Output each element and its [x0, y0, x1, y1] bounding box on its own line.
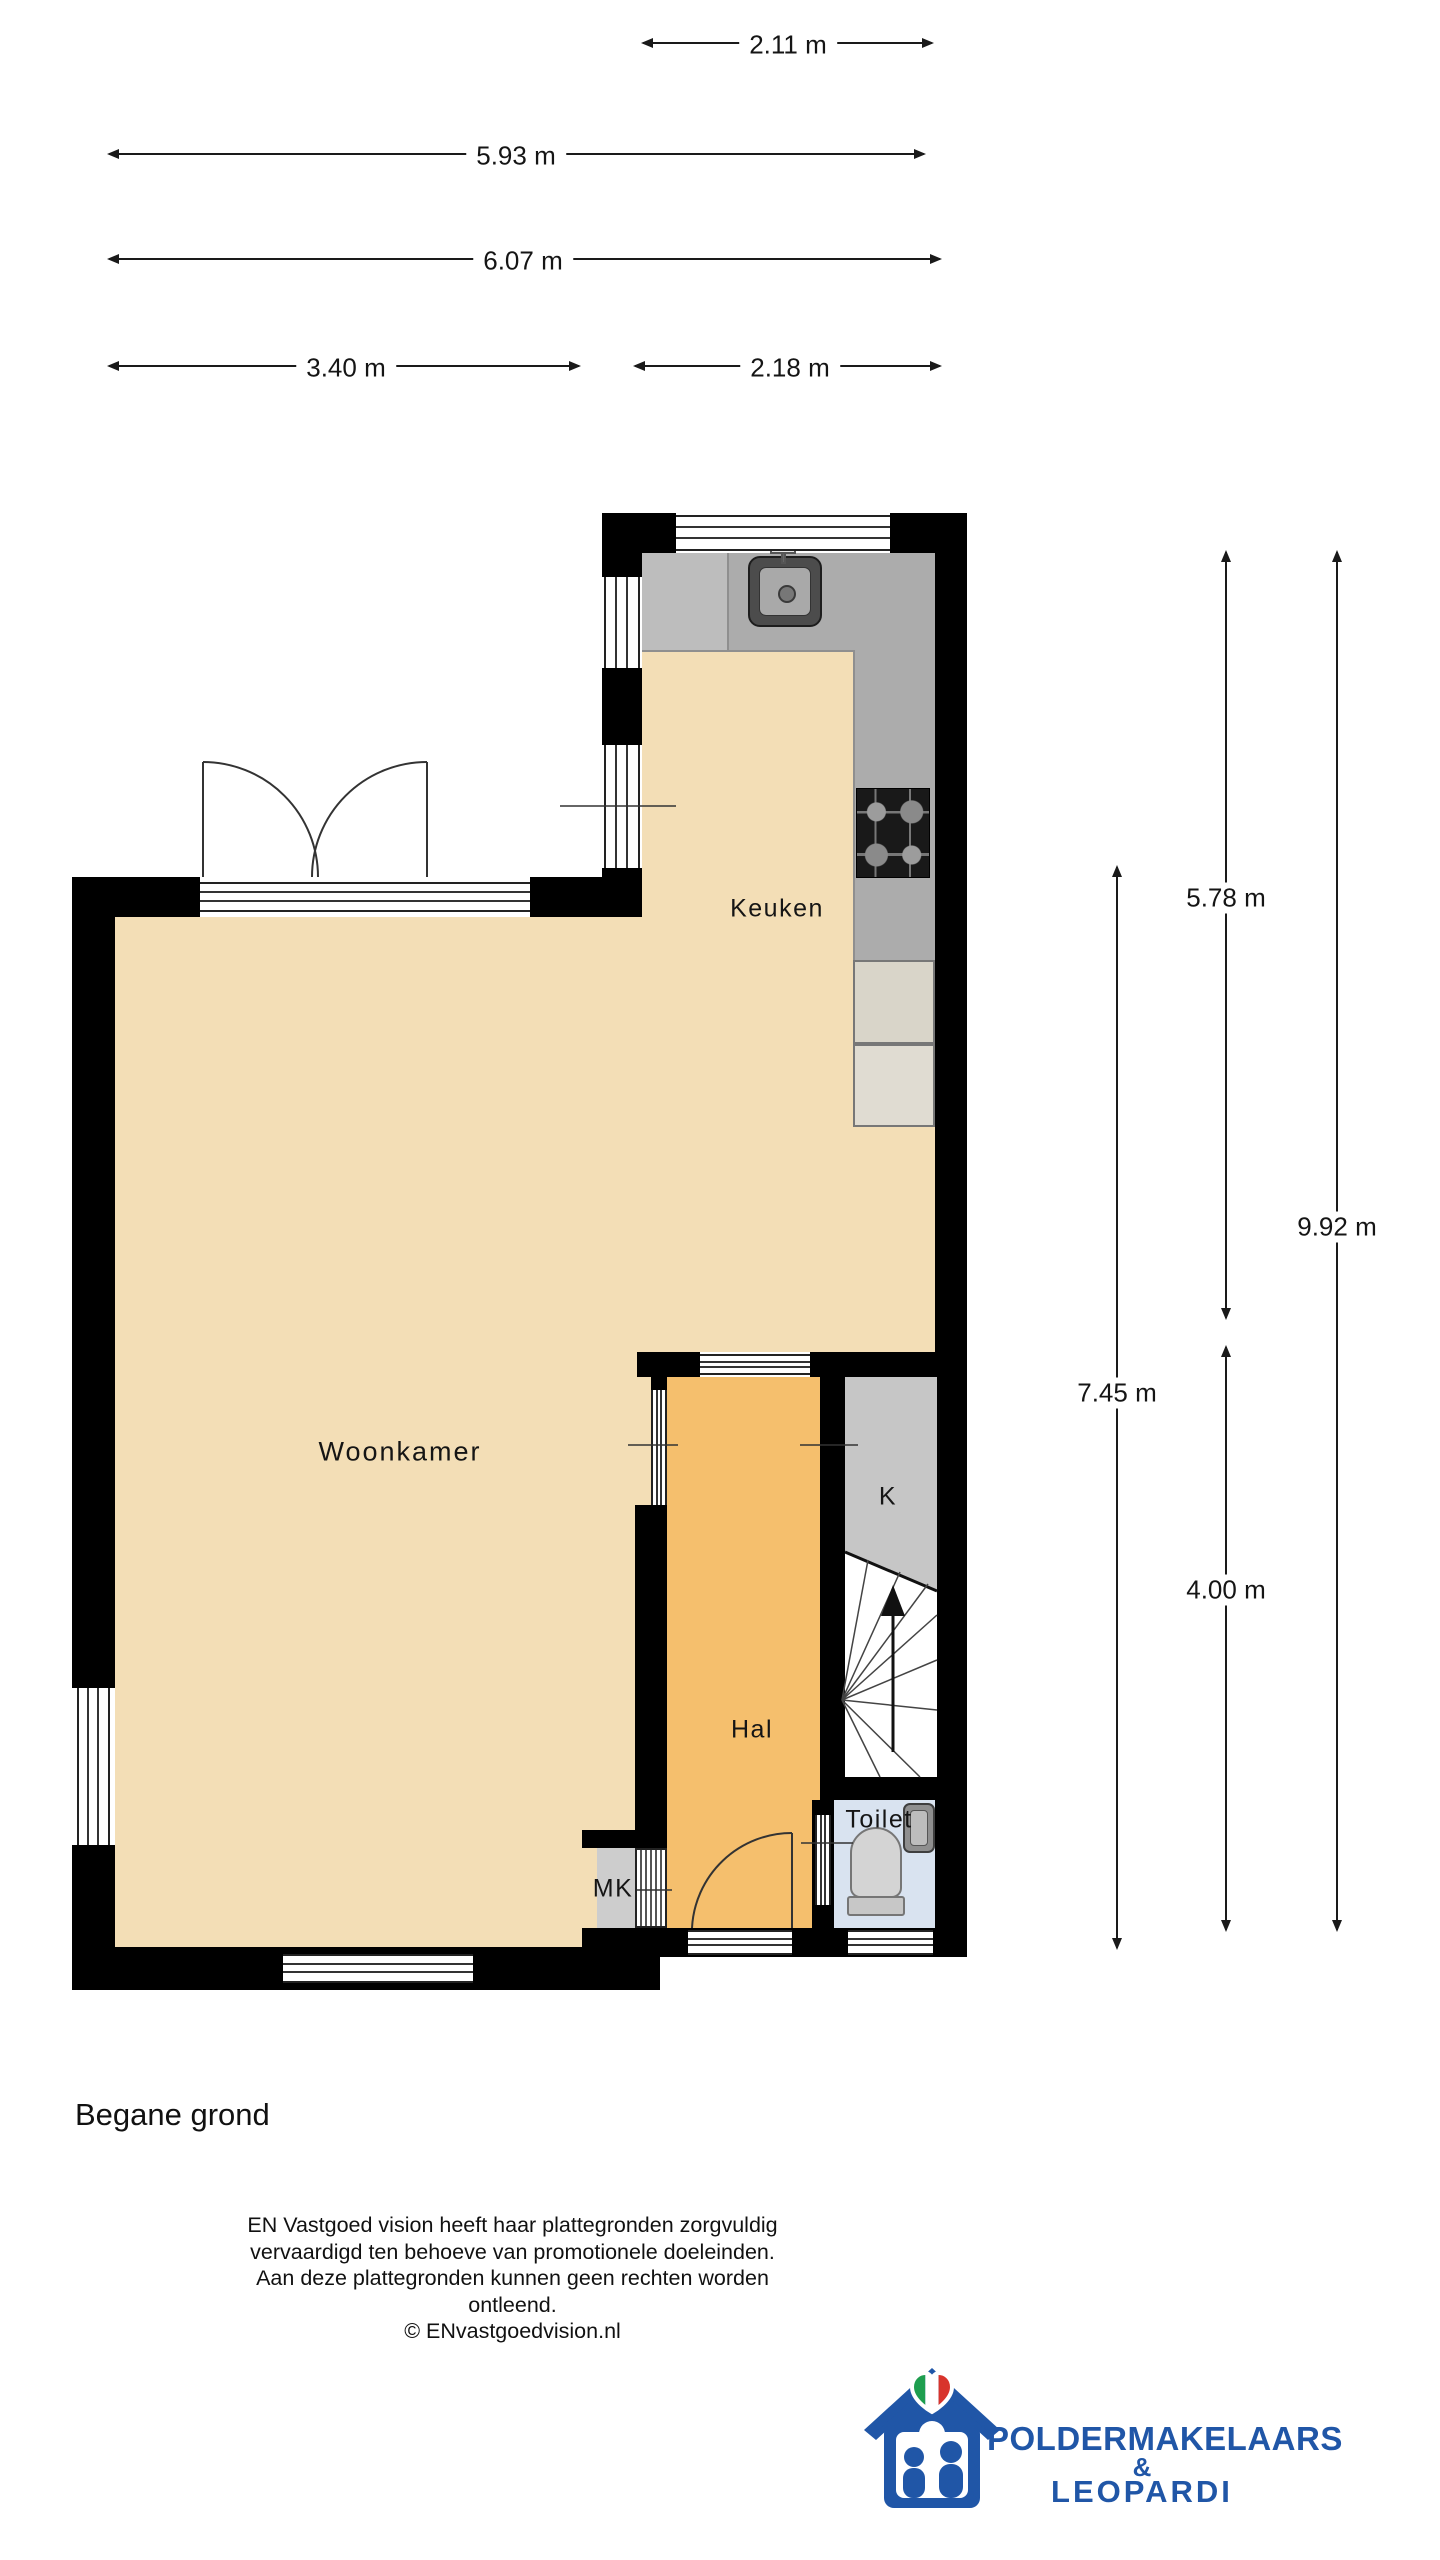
reference-tick-lines [560, 806, 858, 1890]
front-door-icon [692, 1833, 792, 1928]
dim-total-height: 9.92 m [1287, 1212, 1387, 1243]
page-title: Begane grond [75, 2097, 270, 2133]
disclaimer-line-1: EN Vastgoed vision heeft haar plattegron… [240, 2212, 785, 2239]
dim-kitchen-window-width: 2.11 m [739, 30, 837, 61]
disclaimer-line-2: vervaardigd ten behoeve van promotionele… [240, 2239, 785, 2266]
dim-living-width: 3.40 m [296, 353, 396, 384]
dimension-lines-horizontal [109, 43, 940, 366]
floorplan-page: 2.11 m 5.93 m 6.07 m 3.40 m 2.18 m 5.78 … [0, 0, 1440, 2560]
room-label-hal: Hal [731, 1716, 773, 1745]
plan-line-overlay [0, 0, 1440, 2560]
dim-kitchen-height: 5.78 m [1176, 883, 1276, 914]
room-label-woonkamer: Woonkamer [318, 1437, 481, 1468]
disclaimer-line-4: © ENvastgoedvision.nl [240, 2318, 785, 2345]
room-label-kast: K [879, 1483, 897, 1512]
room-label-toilet: Toilet [845, 1806, 912, 1835]
dim-kitchen-width: 2.18 m [740, 353, 840, 384]
dim-upper-width: 5.93 m [466, 141, 566, 172]
room-label-meterkast: MK [593, 1875, 634, 1904]
dim-total-width: 6.07 m [473, 246, 573, 277]
dimension-lines-vertical [1117, 552, 1337, 1948]
room-label-keuken: Keuken [730, 895, 824, 924]
logo-name-bottom: LEOPARDI [987, 2474, 1297, 2510]
disclaimer-block: EN Vastgoed vision heeft haar plattegron… [240, 2212, 785, 2345]
dim-living-height: 7.45 m [1067, 1378, 1167, 1409]
dim-hall-height: 4.00 m [1176, 1575, 1276, 1606]
agency-logo-house-icon [862, 2362, 1002, 2512]
french-doors-icon [203, 762, 427, 877]
disclaimer-line-3: Aan deze plattegronden kunnen geen recht… [240, 2265, 785, 2318]
